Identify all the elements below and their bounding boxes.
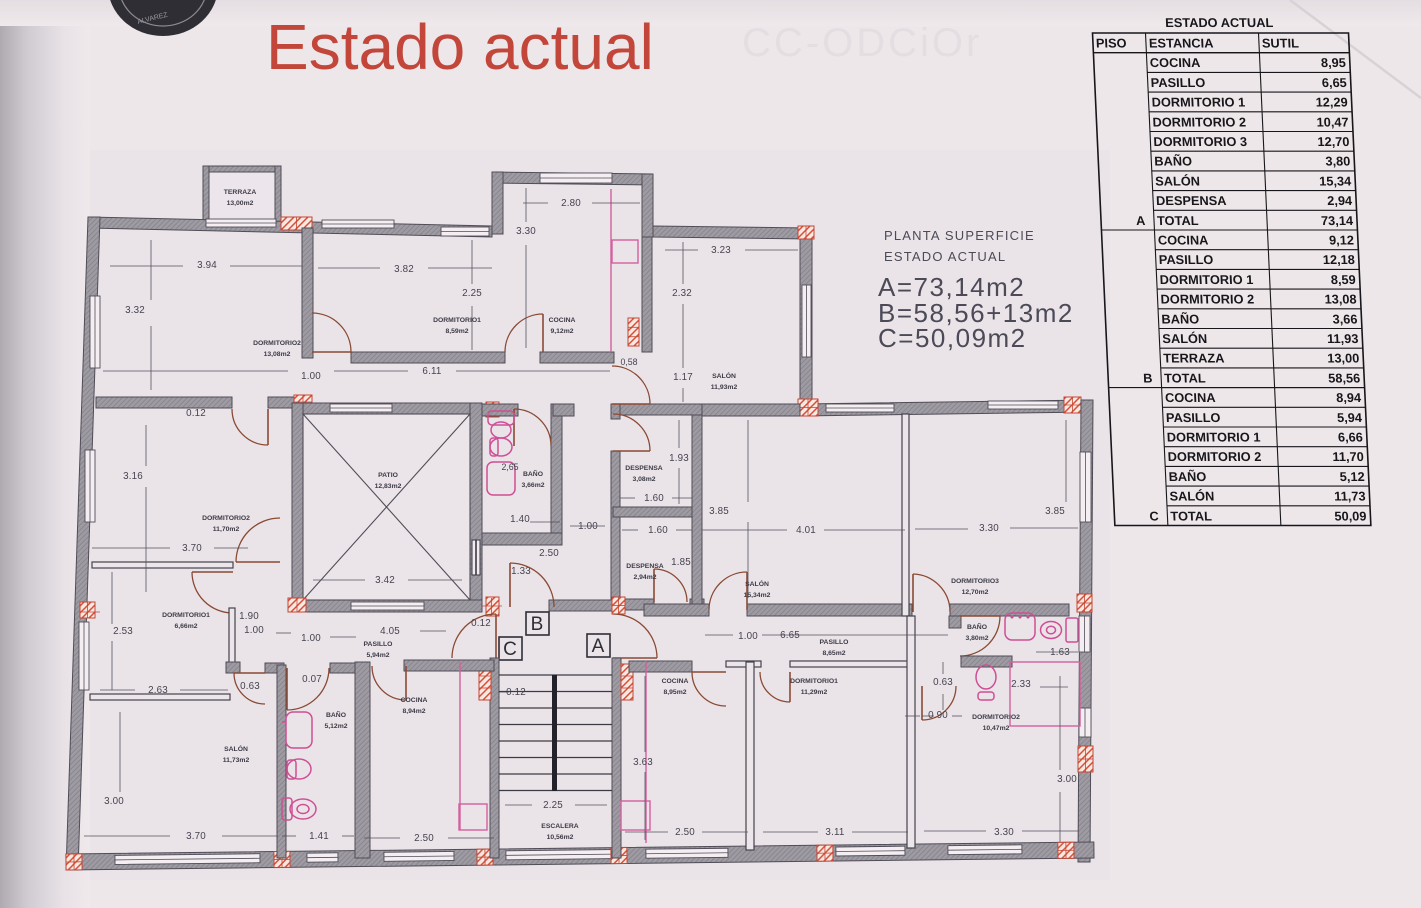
- svg-text:12,70: 12,70: [1317, 134, 1350, 149]
- svg-text:DORMITORIO 1: DORMITORIO 1: [1159, 272, 1253, 287]
- svg-text:2.63: 2.63: [148, 685, 168, 696]
- svg-text:1.93: 1.93: [669, 453, 689, 464]
- svg-text:8,65m2: 8,65m2: [822, 650, 845, 657]
- svg-text:1.60: 1.60: [648, 525, 668, 536]
- svg-text:2,94: 2,94: [1327, 193, 1353, 208]
- svg-text:BAÑO: BAÑO: [967, 622, 987, 631]
- svg-text:2.25: 2.25: [543, 800, 563, 811]
- svg-text:3,80: 3,80: [1325, 154, 1351, 169]
- svg-text:3.32: 3.32: [125, 305, 145, 316]
- svg-text:12,18: 12,18: [1322, 252, 1355, 267]
- svg-text:Estado actual: Estado actual: [266, 11, 654, 83]
- svg-text:COCINA: COCINA: [1165, 390, 1216, 405]
- svg-text:10,47: 10,47: [1316, 114, 1349, 129]
- svg-text:C: C: [1149, 508, 1159, 523]
- svg-text:SALÓN: SALÓN: [1155, 173, 1200, 188]
- svg-text:9,12m2: 9,12m2: [550, 328, 573, 335]
- svg-text:4.05: 4.05: [380, 626, 400, 637]
- svg-text:ESTANCIA: ESTANCIA: [1149, 36, 1214, 51]
- svg-text:3.70: 3.70: [182, 543, 202, 554]
- svg-text:11,70: 11,70: [1332, 449, 1364, 464]
- svg-text:12,70m2: 12,70m2: [962, 589, 989, 596]
- svg-text:TERRAZA: TERRAZA: [224, 189, 257, 196]
- svg-text:BAÑO: BAÑO: [1168, 469, 1206, 484]
- svg-text:13,00m2: 13,00m2: [227, 200, 254, 207]
- svg-text:A: A: [592, 636, 605, 657]
- svg-text:PASILLO: PASILLO: [1158, 252, 1213, 267]
- svg-text:3.00: 3.00: [104, 796, 124, 807]
- svg-text:SUTIL: SUTIL: [1262, 36, 1300, 51]
- svg-text:0.12: 0.12: [186, 408, 206, 419]
- svg-text:DESPENSA: DESPENSA: [625, 465, 662, 472]
- svg-text:1.85: 1.85: [671, 557, 691, 568]
- svg-text:DORMITORIO 1: DORMITORIO 1: [1151, 95, 1245, 110]
- svg-text:6.65: 6.65: [780, 630, 800, 641]
- svg-text:0.07: 0.07: [302, 674, 322, 685]
- svg-text:PISO: PISO: [1096, 36, 1127, 51]
- svg-text:3,08m2: 3,08m2: [632, 476, 655, 483]
- svg-text:5,12: 5,12: [1339, 469, 1365, 484]
- svg-text:3,66: 3,66: [1332, 311, 1358, 326]
- svg-text:8,59: 8,59: [1330, 272, 1356, 287]
- svg-text:0.90: 0.90: [928, 710, 948, 721]
- svg-text:SALÓN: SALÓN: [224, 744, 248, 753]
- svg-text:6,65: 6,65: [1321, 75, 1347, 90]
- svg-text:DORMITORIO 2: DORMITORIO 2: [1152, 114, 1246, 129]
- svg-text:0.63: 0.63: [933, 677, 953, 688]
- svg-text:ESTADO ACTUAL: ESTADO ACTUAL: [884, 249, 1006, 264]
- svg-text:2.80: 2.80: [561, 198, 581, 209]
- svg-text:2.25: 2.25: [462, 288, 482, 299]
- svg-text:3.23: 3.23: [711, 245, 731, 256]
- svg-text:3.63: 3.63: [633, 757, 653, 768]
- svg-text:COCINA: COCINA: [401, 697, 428, 704]
- svg-text:11,70m2: 11,70m2: [213, 526, 240, 533]
- svg-text:13,00: 13,00: [1327, 351, 1360, 366]
- svg-text:2.50: 2.50: [414, 833, 434, 844]
- svg-text:TERRAZA: TERRAZA: [1163, 351, 1225, 366]
- svg-text:SALÓN: SALÓN: [1169, 489, 1214, 504]
- svg-text:SALÓN: SALÓN: [1162, 331, 1207, 346]
- svg-text:PASILLO: PASILLO: [1150, 75, 1205, 90]
- svg-text:8,95m2: 8,95m2: [663, 689, 686, 696]
- svg-text:3.00: 3.00: [1057, 774, 1077, 785]
- svg-text:COCINA: COCINA: [662, 678, 689, 685]
- svg-text:1.90: 1.90: [239, 611, 259, 622]
- svg-text:2.33: 2.33: [1011, 679, 1031, 690]
- svg-text:DORMITORIO1: DORMITORIO1: [433, 317, 481, 324]
- svg-text:0.12: 0.12: [471, 618, 491, 629]
- svg-text:DORMITORIO2: DORMITORIO2: [202, 515, 250, 522]
- svg-text:1.33: 1.33: [511, 566, 531, 577]
- svg-text:DORMITORIO3: DORMITORIO3: [951, 578, 999, 585]
- svg-text:1.00: 1.00: [301, 371, 321, 382]
- svg-text:0.12: 0.12: [506, 687, 526, 698]
- svg-text:1.41: 1.41: [309, 831, 329, 842]
- svg-text:1.63: 1.63: [1050, 647, 1070, 658]
- svg-text:COCINA: COCINA: [1158, 233, 1209, 248]
- svg-text:B: B: [531, 614, 544, 635]
- svg-text:DESPENSA: DESPENSA: [1156, 193, 1227, 208]
- svg-text:2.32: 2.32: [672, 288, 692, 299]
- svg-text:BAÑO: BAÑO: [1154, 154, 1192, 169]
- svg-text:PASILLO: PASILLO: [820, 639, 849, 646]
- svg-text:DORMITORIO2: DORMITORIO2: [972, 714, 1020, 721]
- svg-text:73,14: 73,14: [1321, 213, 1355, 228]
- svg-text:3.70: 3.70: [186, 831, 206, 842]
- svg-text:2,65: 2,65: [501, 462, 518, 472]
- svg-text:0.63: 0.63: [240, 681, 260, 692]
- svg-text:C=50,09m2: C=50,09m2: [878, 323, 1027, 353]
- svg-text:3.30: 3.30: [994, 827, 1014, 838]
- svg-text:5,94: 5,94: [1337, 410, 1363, 425]
- svg-text:CC-ODCiOr: CC-ODCiOr: [742, 21, 982, 65]
- svg-text:2.50: 2.50: [539, 548, 559, 559]
- svg-text:TOTAL: TOTAL: [1170, 508, 1212, 523]
- svg-text:58,56: 58,56: [1328, 370, 1361, 385]
- svg-text:1.00: 1.00: [738, 631, 758, 642]
- svg-text:ESTADO ACTUAL: ESTADO ACTUAL: [1165, 15, 1274, 30]
- svg-text:8,94: 8,94: [1336, 390, 1362, 405]
- svg-text:3.85: 3.85: [1045, 506, 1065, 517]
- svg-text:COCINA: COCINA: [549, 317, 576, 324]
- svg-text:DORMITORIO 2: DORMITORIO 2: [1160, 292, 1254, 307]
- svg-text:1.00: 1.00: [301, 633, 321, 644]
- svg-text:10,56m2: 10,56m2: [547, 834, 574, 841]
- svg-text:SALÓN: SALÓN: [745, 579, 769, 588]
- svg-text:COCINA: COCINA: [1150, 55, 1201, 70]
- svg-text:5,94m2: 5,94m2: [366, 652, 389, 659]
- svg-text:DORMITORIO 1: DORMITORIO 1: [1167, 430, 1261, 445]
- svg-text:ESCALERA: ESCALERA: [541, 823, 578, 830]
- svg-text:13,08m2: 13,08m2: [264, 351, 291, 358]
- svg-text:3.16: 3.16: [123, 471, 143, 482]
- svg-text:PASILLO: PASILLO: [1166, 410, 1221, 425]
- svg-text:PATIO: PATIO: [378, 472, 398, 479]
- svg-text:3.85: 3.85: [709, 506, 729, 517]
- svg-text:9,12: 9,12: [1329, 233, 1355, 248]
- svg-text:8,59m2: 8,59m2: [445, 328, 468, 335]
- svg-text:B: B: [1143, 370, 1153, 385]
- svg-text:3.82: 3.82: [394, 264, 414, 275]
- svg-text:12,29: 12,29: [1315, 95, 1348, 110]
- svg-text:2.53: 2.53: [113, 626, 133, 637]
- svg-text:BAÑO: BAÑO: [523, 469, 543, 478]
- svg-text:6.11: 6.11: [422, 366, 441, 377]
- svg-text:3.30: 3.30: [979, 523, 999, 534]
- svg-text:PLANTA SUPERFICIE: PLANTA SUPERFICIE: [884, 228, 1035, 243]
- svg-text:TOTAL: TOTAL: [1157, 213, 1199, 228]
- svg-text:4.01: 4.01: [796, 525, 816, 536]
- svg-text:TOTAL: TOTAL: [1164, 370, 1206, 385]
- svg-text:1.60: 1.60: [644, 493, 664, 504]
- svg-text:DORMITORIO 2: DORMITORIO 2: [1167, 449, 1261, 464]
- svg-text:DORMITORIO1: DORMITORIO1: [790, 678, 838, 685]
- svg-text:1.00: 1.00: [244, 625, 264, 636]
- svg-text:DORMITORIO1: DORMITORIO1: [162, 612, 210, 619]
- svg-text:BAÑO: BAÑO: [1161, 311, 1199, 326]
- svg-text:3.42: 3.42: [375, 575, 395, 586]
- svg-text:1.40: 1.40: [510, 514, 530, 525]
- svg-text:5,12m2: 5,12m2: [324, 723, 347, 730]
- svg-text:2,94m2: 2,94m2: [633, 574, 656, 581]
- svg-text:11,73: 11,73: [1334, 489, 1366, 504]
- svg-text:11,93: 11,93: [1327, 331, 1359, 346]
- svg-text:6,66: 6,66: [1338, 430, 1364, 445]
- svg-text:3.30: 3.30: [516, 226, 536, 237]
- svg-text:15,34: 15,34: [1319, 173, 1353, 188]
- svg-text:1.17: 1.17: [673, 372, 693, 383]
- svg-text:50,09: 50,09: [1334, 508, 1367, 523]
- svg-text:A: A: [1136, 213, 1146, 228]
- svg-text:6,66m2: 6,66m2: [174, 623, 197, 630]
- svg-text:1.00: 1.00: [578, 521, 598, 532]
- svg-text:10,47m2: 10,47m2: [983, 725, 1010, 732]
- svg-text:DORMITORIO2: DORMITORIO2: [253, 340, 301, 347]
- svg-text:SALÓN: SALÓN: [712, 371, 736, 380]
- svg-text:11,29m2: 11,29m2: [801, 689, 828, 696]
- svg-text:11,93m2: 11,93m2: [711, 384, 738, 391]
- svg-text:BAÑO: BAÑO: [326, 710, 346, 719]
- svg-text:3.94: 3.94: [197, 260, 217, 271]
- svg-text:12,83m2: 12,83m2: [375, 483, 402, 490]
- svg-text:0,58: 0,58: [620, 357, 637, 367]
- svg-text:3,80m2: 3,80m2: [965, 635, 988, 642]
- svg-text:DORMITORIO 3: DORMITORIO 3: [1153, 134, 1247, 149]
- svg-text:PASILLO: PASILLO: [364, 641, 393, 648]
- svg-text:3.11: 3.11: [825, 827, 844, 838]
- svg-text:8,94m2: 8,94m2: [402, 708, 425, 715]
- svg-text:13,08: 13,08: [1324, 292, 1357, 307]
- svg-text:DESPENSA: DESPENSA: [626, 563, 663, 570]
- svg-text:11,73m2: 11,73m2: [223, 757, 250, 764]
- svg-text:8,95: 8,95: [1321, 55, 1347, 70]
- svg-text:3,66m2: 3,66m2: [521, 482, 544, 489]
- svg-text:C: C: [503, 639, 517, 660]
- svg-text:2.50: 2.50: [675, 827, 695, 838]
